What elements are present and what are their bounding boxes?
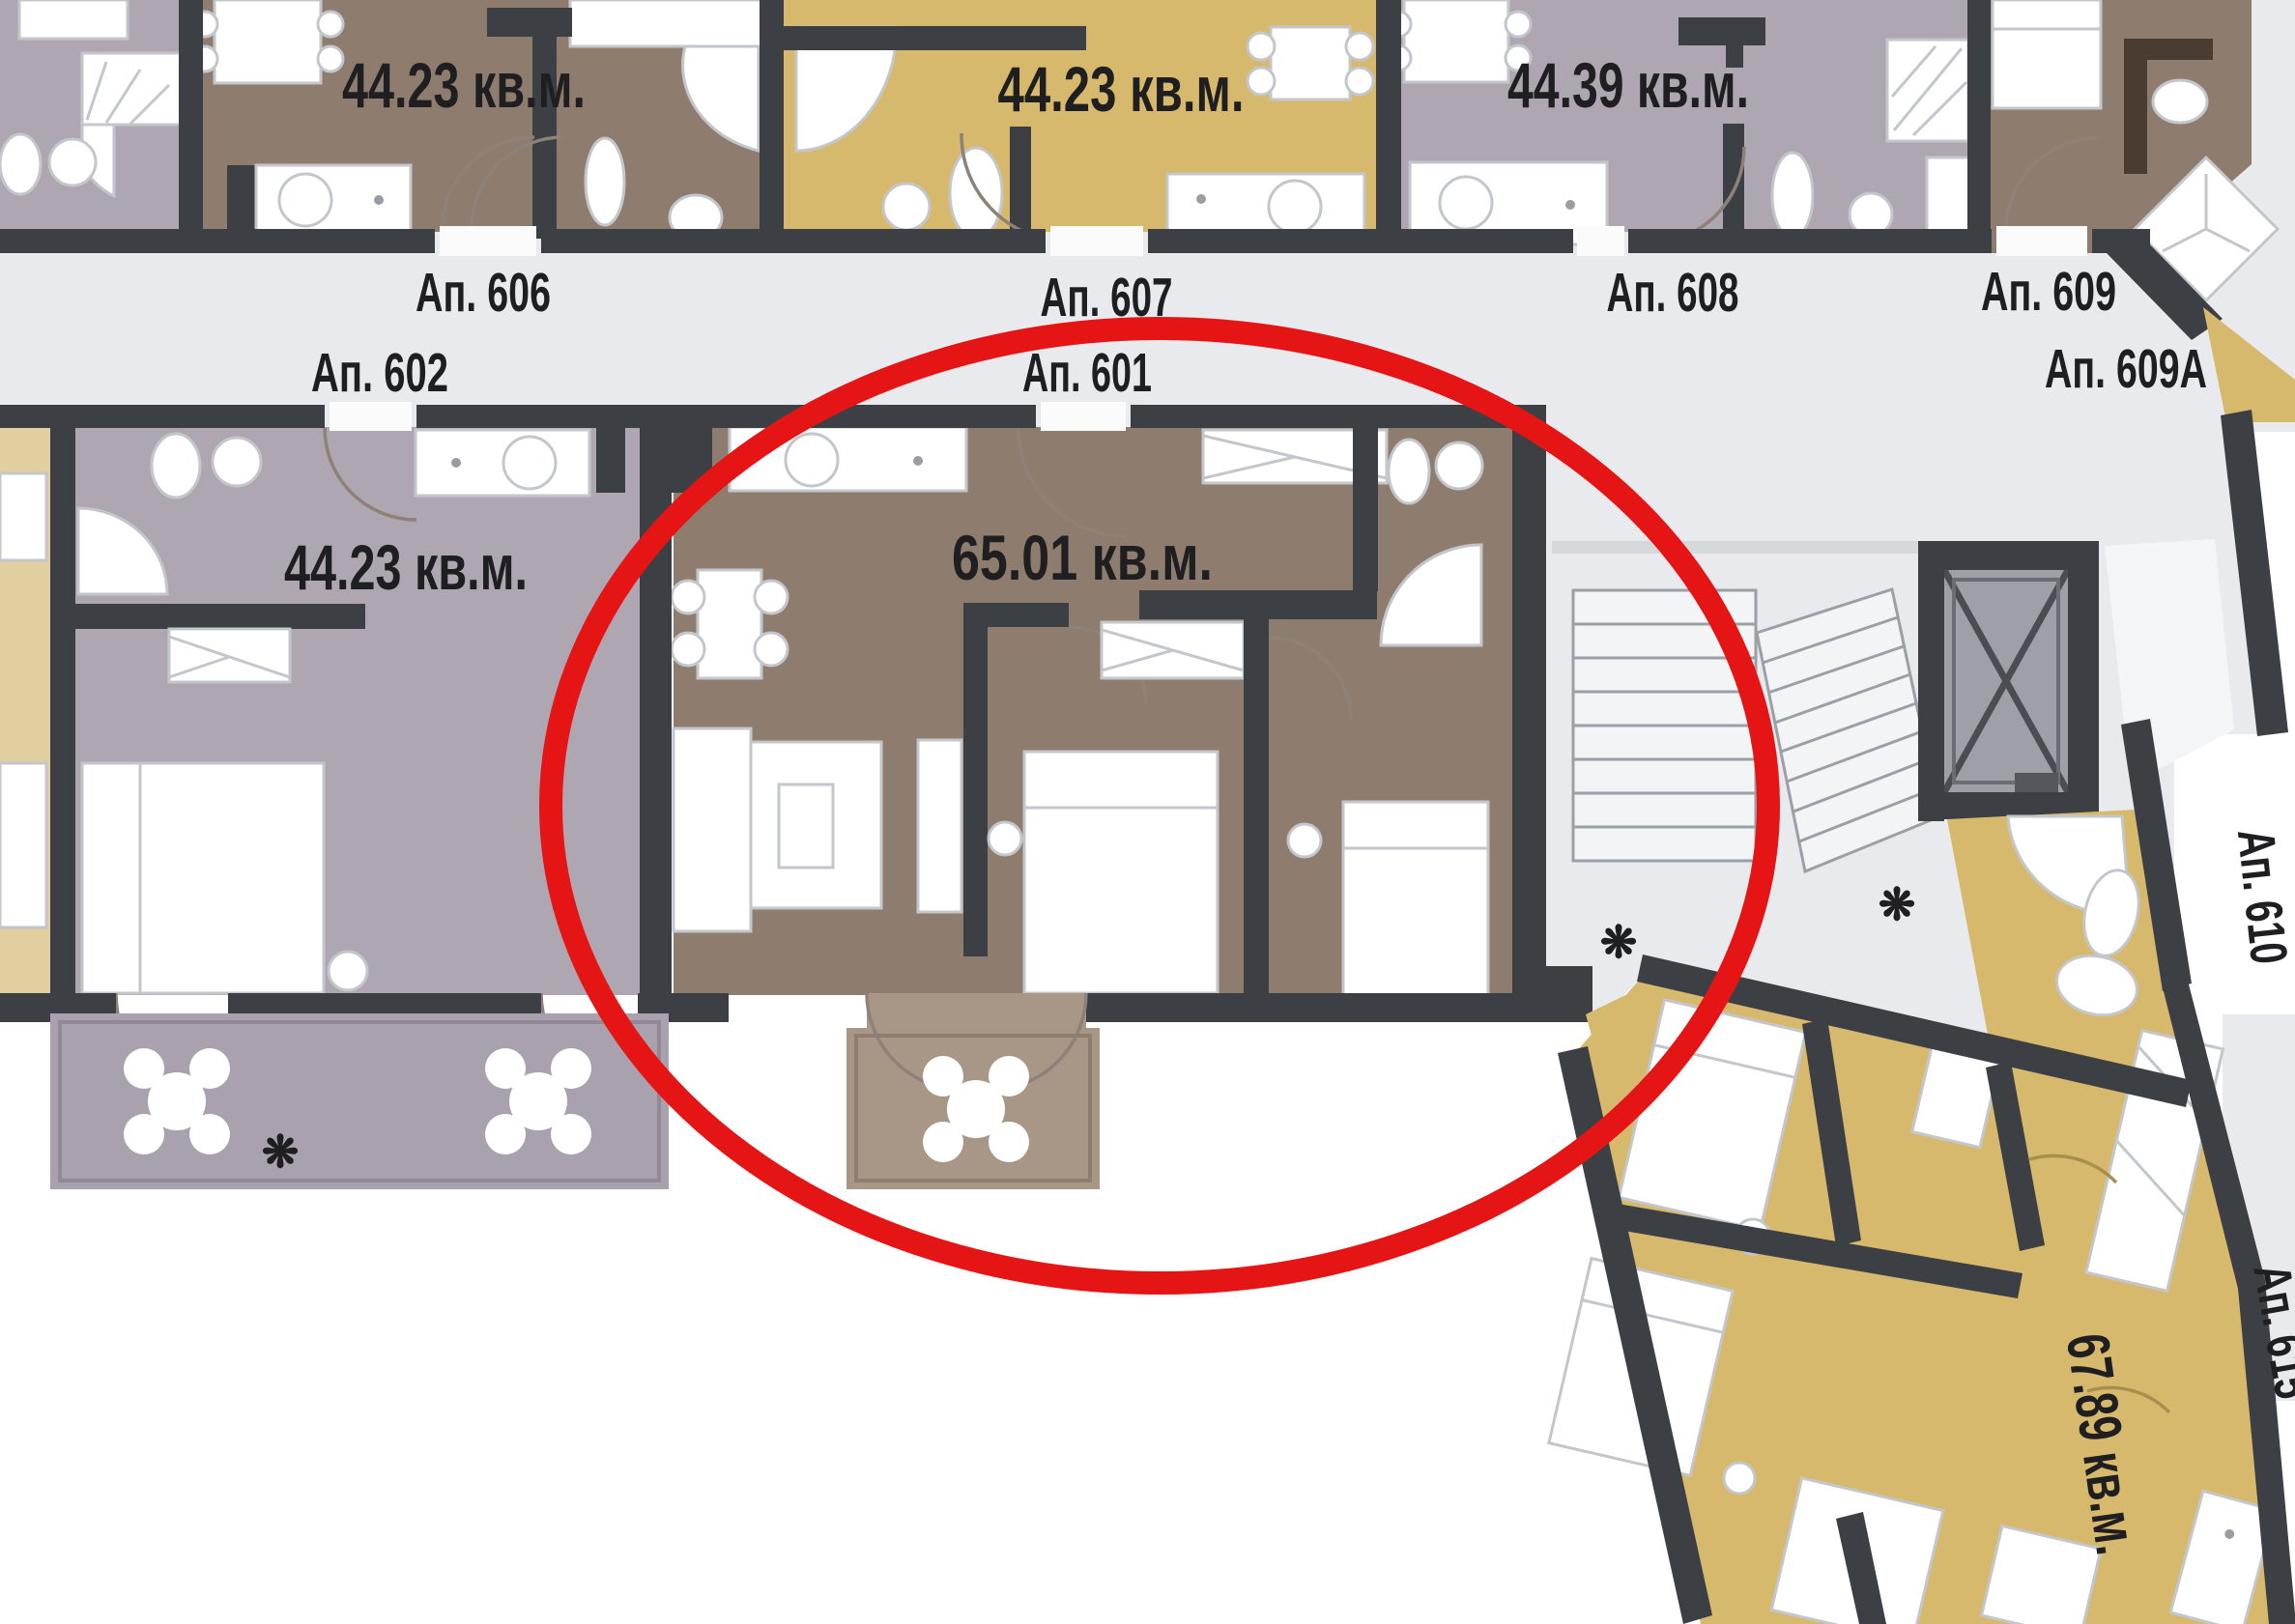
svg-text:44.39 кв.м.: 44.39 кв.м.	[1507, 49, 1749, 121]
svg-text:Ап. 601: Ап. 601	[1022, 342, 1152, 404]
svg-text:Ап. 609: Ап. 609	[1981, 261, 2116, 323]
svg-text:Ап. 606: Ап. 606	[416, 262, 551, 324]
svg-text:65.01 кв.м.: 65.01 кв.м.	[952, 522, 1213, 593]
svg-text:Ап. 602: Ап. 602	[311, 342, 448, 404]
svg-text:44.23 кв.м.: 44.23 кв.м.	[284, 531, 528, 603]
svg-text:❋: ❋	[1879, 879, 1916, 929]
svg-text:❋: ❋	[1600, 917, 1638, 967]
svg-text:Ап. 609А: Ап. 609А	[2045, 338, 2207, 400]
svg-text:44.23 кв.м.: 44.23 кв.м.	[998, 53, 1245, 125]
svg-text:Ап. 608: Ап. 608	[1607, 262, 1739, 324]
svg-text:❋: ❋	[262, 1126, 300, 1177]
svg-text:44.23 кв.м.: 44.23 кв.м.	[342, 49, 586, 121]
